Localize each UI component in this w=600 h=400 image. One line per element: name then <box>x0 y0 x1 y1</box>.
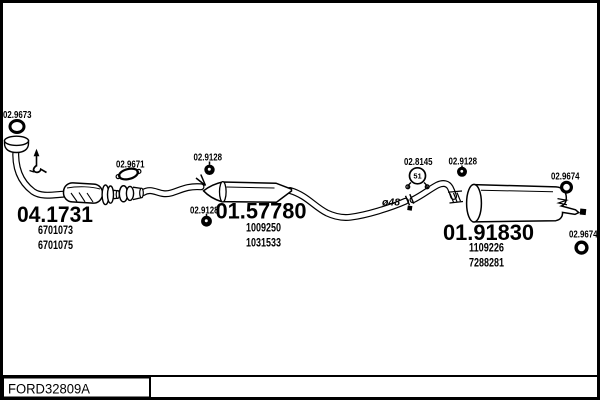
callout-hanger-front: 02.9128 <box>194 153 223 164</box>
oe-number: 1031533 <box>246 238 281 250</box>
part-number-centre-silencer: 01.57780 <box>216 199 307 224</box>
tailpipe-end-marker <box>580 209 587 216</box>
callout-hanger-rear: 02.9128 <box>449 157 478 168</box>
callout-pipe-diameter: ø48 <box>382 197 400 209</box>
exhaust-diagram-page: 51 02.9673 02.9671 02.9128 02.9128 ø48 0… <box>0 0 600 400</box>
part-number-rear-silencer: 01.91830 <box>443 220 534 245</box>
oe-number: 1009250 <box>246 223 281 235</box>
exhaust-diagram-canvas: 51 02.9673 02.9671 02.9128 02.9128 ø48 0… <box>0 0 600 400</box>
callout-ring-lower: 02.9674 <box>569 230 598 241</box>
callout-front-gasket: 02.9673 <box>3 110 32 121</box>
oe-number: 6701073 <box>38 225 73 237</box>
diagram-code: FORD32809A <box>8 382 90 397</box>
part-number-front-pipe: 04.1731 <box>17 202 93 227</box>
front-flange <box>5 136 29 152</box>
callout-ring-upper: 02.9674 <box>551 172 580 183</box>
callout-hanger-centre: 02.9128 <box>190 206 219 217</box>
callout-clamp: 02.8145 <box>404 157 433 168</box>
clamp-size-label: 51 <box>413 172 421 181</box>
oe-number: 7288281 <box>469 258 504 270</box>
oe-number: 1109226 <box>469 243 504 255</box>
joint-marker-square <box>407 206 412 211</box>
oe-number: 6701075 <box>38 240 73 252</box>
callout-mid-gasket: 02.9671 <box>116 160 145 171</box>
